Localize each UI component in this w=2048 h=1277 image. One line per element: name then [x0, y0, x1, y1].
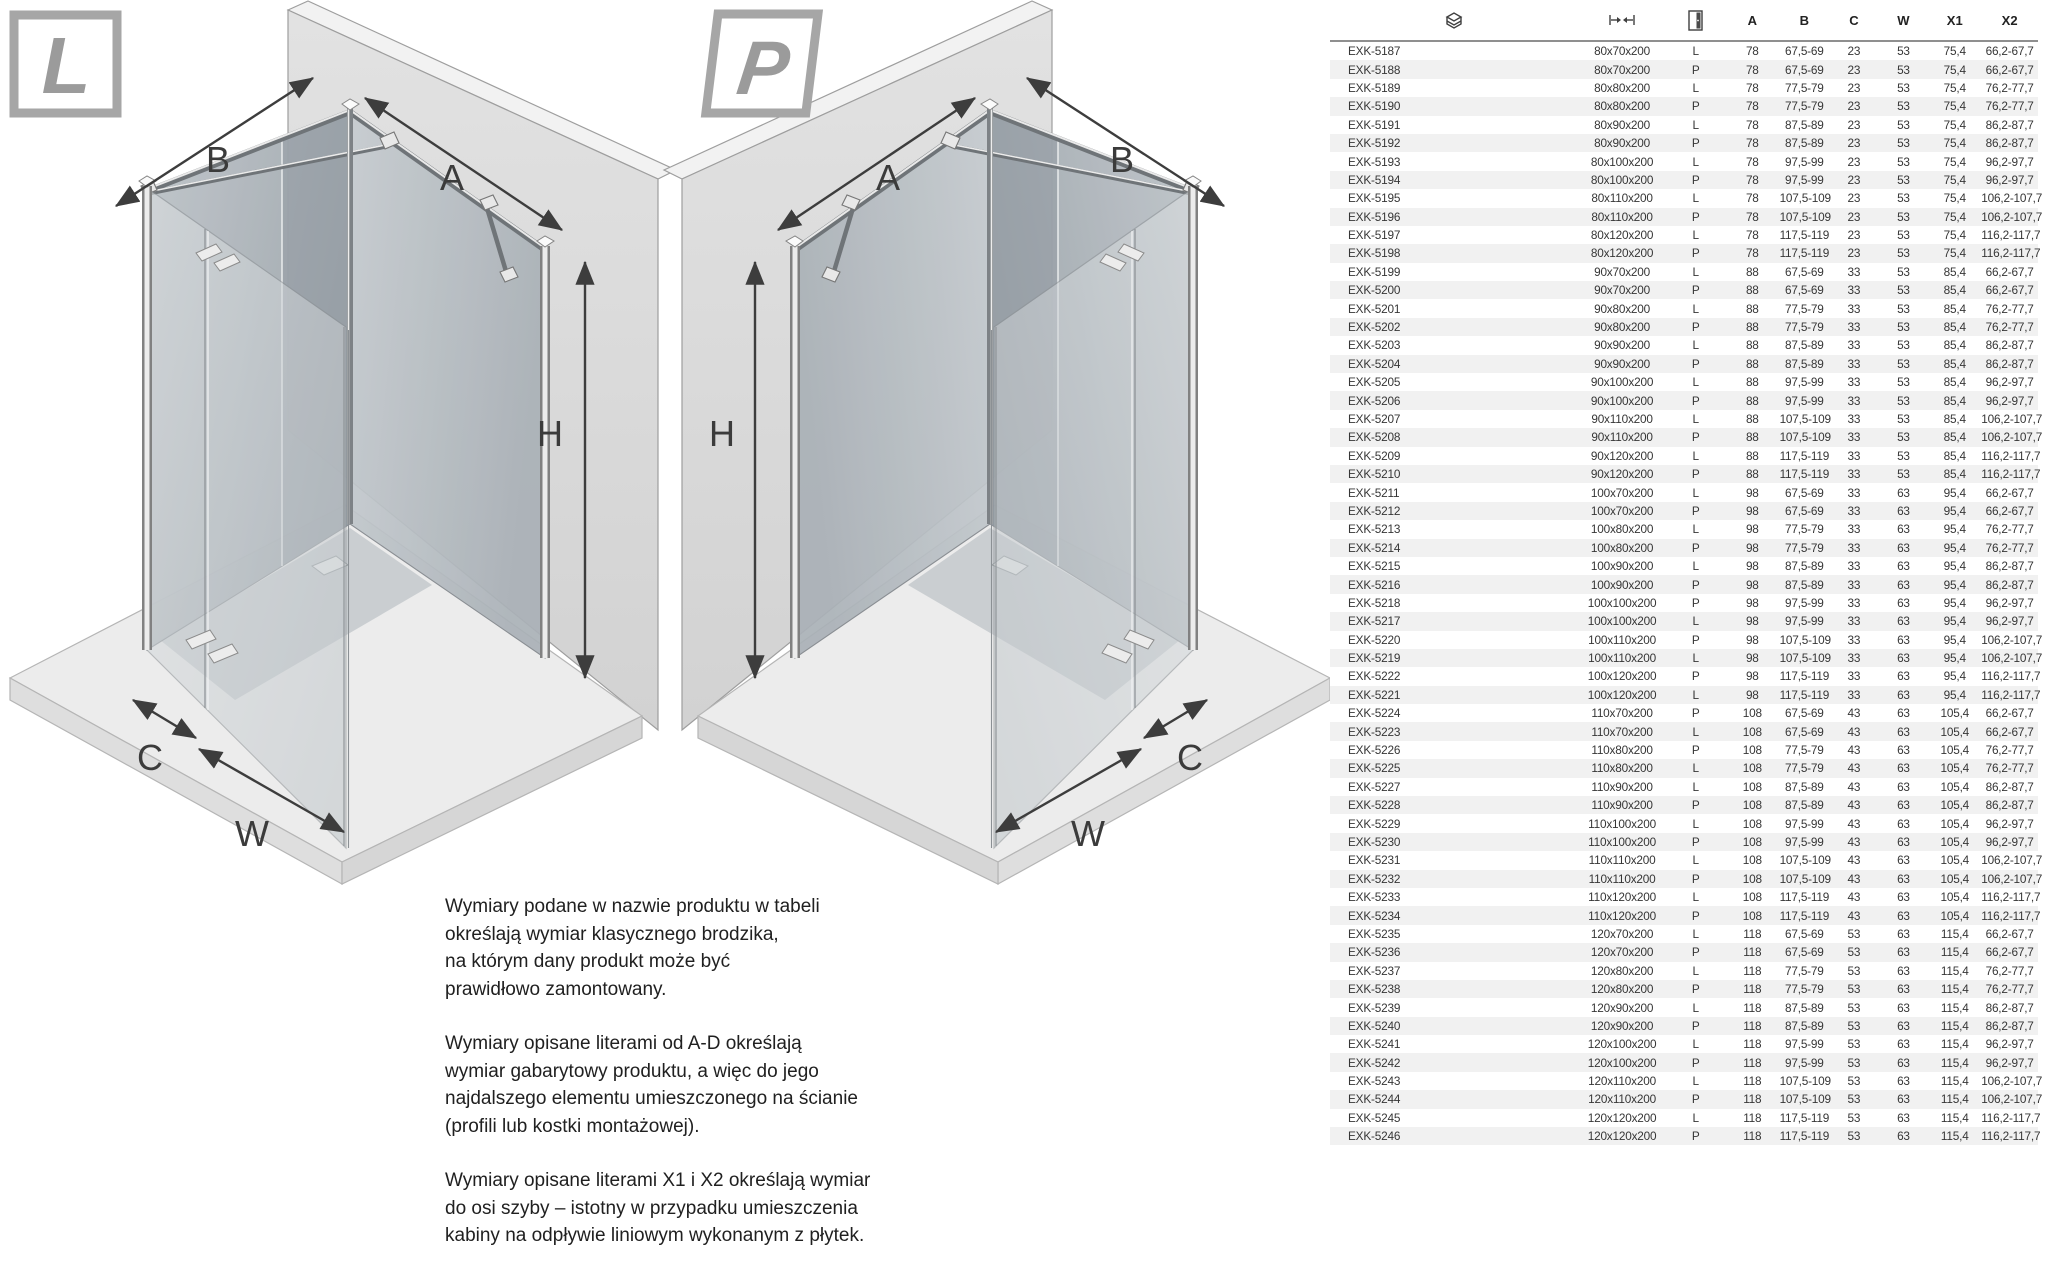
- table-cell: 86,2-87,7: [1981, 338, 2038, 352]
- table-cell: 95,4: [1928, 633, 1981, 647]
- table-cell: 118: [1725, 1074, 1780, 1088]
- table-cell: P: [1666, 1019, 1725, 1033]
- table-cell: 106,2-107,7: [1981, 1092, 2038, 1106]
- table-cell: 75,4: [1928, 228, 1981, 242]
- table-cell: 53: [1829, 1092, 1879, 1106]
- table-cell: 88: [1725, 449, 1780, 463]
- table-row: EXK-519990x70x200L8867,5-69335385,466,2-…: [1330, 263, 2038, 281]
- table-cell: 107,5-109: [1780, 1074, 1830, 1088]
- table-cell: 67,5-69: [1780, 945, 1830, 959]
- table-cell: 53: [1879, 118, 1929, 132]
- table-cell: 105,4: [1928, 817, 1981, 831]
- table-cell: EXK-5220: [1330, 633, 1578, 647]
- table-cell: EXK-5238: [1330, 982, 1578, 996]
- table-cell: 66,2-67,7: [1981, 44, 2038, 58]
- table-cell: 88: [1725, 467, 1780, 481]
- table-row: EXK-520290x80x200P8877,5-79335385,476,2-…: [1330, 318, 2038, 336]
- table-cell: 117,5-119: [1780, 890, 1830, 904]
- table-cell: EXK-5237: [1330, 964, 1578, 978]
- table-cell: 98: [1725, 596, 1780, 610]
- table-cell: 78: [1725, 210, 1780, 224]
- table-cell: EXK-5228: [1330, 798, 1578, 812]
- table-cell: EXK-5224: [1330, 706, 1578, 720]
- dim-label-b-left: B: [206, 139, 230, 180]
- table-cell: 116,2-117,7: [1981, 890, 2038, 904]
- table-cell: 110x120x200: [1578, 890, 1667, 904]
- table-cell: 23: [1829, 155, 1879, 169]
- table-cell: 88: [1725, 357, 1780, 371]
- table-cell: 116,2-117,7: [1981, 1129, 2038, 1143]
- table-cell: 77,5-79: [1780, 81, 1830, 95]
- table-cell: 98: [1725, 688, 1780, 702]
- table-cell: 120x90x200: [1578, 1019, 1667, 1033]
- table-cell: L: [1666, 1001, 1725, 1015]
- table-cell: 43: [1829, 835, 1879, 849]
- table-row: EXK-520190x80x200L8877,5-79335385,476,2-…: [1330, 299, 2038, 317]
- table-cell: 63: [1879, 909, 1929, 923]
- table-cell: 90x100x200: [1578, 394, 1667, 408]
- table-cell: 95,4: [1928, 596, 1981, 610]
- table-cell: P: [1666, 504, 1725, 518]
- table-cell: EXK-5189: [1330, 81, 1578, 95]
- table-cell: 108: [1725, 706, 1780, 720]
- table-cell: 120x120x200: [1578, 1129, 1667, 1143]
- table-row: EXK-5242120x100x200P11897,5-995363115,49…: [1330, 1053, 2038, 1071]
- table-cell: 33: [1829, 357, 1879, 371]
- table-cell: L: [1666, 614, 1725, 628]
- table-cell: 76,2-77,7: [1981, 982, 2038, 996]
- table-cell: 115,4: [1928, 1092, 1981, 1106]
- table-cell: 66,2-67,7: [1981, 486, 2038, 500]
- table-cell: 116,2-117,7: [1981, 909, 2038, 923]
- table-cell: 78: [1725, 99, 1780, 113]
- table-row: EXK-5238120x80x200P11877,5-795363115,476…: [1330, 980, 2038, 998]
- table-cell: 76,2-77,7: [1981, 964, 2038, 978]
- table-cell: EXK-5246: [1330, 1129, 1578, 1143]
- table-cell: EXK-5210: [1330, 467, 1578, 481]
- table-cell: 117,5-119: [1780, 449, 1830, 463]
- table-cell: L: [1666, 302, 1725, 316]
- table-cell: 23: [1829, 173, 1879, 187]
- table-cell: 107,5-109: [1780, 633, 1830, 647]
- table-cell: 53: [1879, 320, 1929, 334]
- table-cell: EXK-5235: [1330, 927, 1578, 941]
- table-cell: EXK-5200: [1330, 283, 1578, 297]
- variant-badge-right: P: [706, 14, 818, 113]
- table-cell: 33: [1829, 541, 1879, 555]
- table-cell: 63: [1879, 982, 1929, 996]
- table-cell: EXK-5212: [1330, 504, 1578, 518]
- table-cell: 53: [1829, 927, 1879, 941]
- table-cell: 120x90x200: [1578, 1001, 1667, 1015]
- table-cell: EXK-5214: [1330, 541, 1578, 555]
- table-cell: 105,4: [1928, 853, 1981, 867]
- table-cell: 80x70x200: [1578, 63, 1667, 77]
- table-cell: 100x70x200: [1578, 486, 1667, 500]
- table-cell: 98: [1725, 486, 1780, 500]
- table-cell: 116,2-117,7: [1981, 1111, 2038, 1125]
- table-cell: 88: [1725, 302, 1780, 316]
- table-cell: 76,2-77,7: [1981, 302, 2038, 316]
- table-cell: L: [1666, 761, 1725, 775]
- table-cell: 53: [1829, 1019, 1879, 1033]
- shower-cabin-diagrams: L B A H C W P A B H C W: [0, 0, 1360, 900]
- table-cell: EXK-5221: [1330, 688, 1578, 702]
- table-cell: L: [1666, 964, 1725, 978]
- table-cell: 77,5-79: [1780, 964, 1830, 978]
- table-cell: 53: [1879, 467, 1929, 481]
- table-cell: 53: [1879, 136, 1929, 150]
- table-cell: 98: [1725, 578, 1780, 592]
- table-cell: 75,4: [1928, 210, 1981, 224]
- table-cell: 80x70x200: [1578, 44, 1667, 58]
- table-cell: 120x100x200: [1578, 1056, 1667, 1070]
- table-cell: 90x90x200: [1578, 357, 1667, 371]
- table-cell: 86,2-87,7: [1981, 578, 2038, 592]
- table-cell: 75,4: [1928, 191, 1981, 205]
- table-cell: 100x110x200: [1578, 633, 1667, 647]
- table-cell: P: [1666, 669, 1725, 683]
- table-cell: 63: [1879, 1019, 1929, 1033]
- table-row: EXK-5240120x90x200P11887,5-895363115,486…: [1330, 1017, 2038, 1035]
- table-row: EXK-5216100x90x200P9887,5-89336395,486,2…: [1330, 575, 2038, 593]
- variant-badge-left: L: [14, 15, 117, 113]
- table-cell: 66,2-67,7: [1981, 265, 2038, 279]
- table-cell: 43: [1829, 743, 1879, 757]
- table-cell: 66,2-67,7: [1981, 283, 2038, 297]
- table-cell: 53: [1879, 357, 1929, 371]
- table-cell: EXK-5192: [1330, 136, 1578, 150]
- table-row: EXK-5234110x120x200P108117,5-1194363105,…: [1330, 906, 2038, 924]
- table-cell: 87,5-89: [1780, 559, 1830, 573]
- column-header-w: W: [1879, 13, 1929, 28]
- table-cell: 80x110x200: [1578, 191, 1667, 205]
- table-cell: 108: [1725, 798, 1780, 812]
- table-cell: 87,5-89: [1780, 578, 1830, 592]
- table-cell: L: [1666, 927, 1725, 941]
- table-cell: 95,4: [1928, 578, 1981, 592]
- table-cell: 97,5-99: [1780, 817, 1830, 831]
- table-cell: 63: [1879, 633, 1929, 647]
- table-cell: 33: [1829, 578, 1879, 592]
- table-row: EXK-5218100x100x200P9897,5-99336395,496,…: [1330, 594, 2038, 612]
- table-row: EXK-518880x70x200P7867,5-69235375,466,2-…: [1330, 60, 2038, 78]
- table-cell: 76,2-77,7: [1981, 99, 2038, 113]
- table-cell: 95,4: [1928, 669, 1981, 683]
- table-row: EXK-5243120x110x200L118107,5-1095363115,…: [1330, 1072, 2038, 1090]
- table-cell: 23: [1829, 228, 1879, 242]
- table-row: EXK-5236120x70x200P11867,5-695363115,466…: [1330, 943, 2038, 961]
- table-cell: 63: [1879, 559, 1929, 573]
- table-cell: 90x70x200: [1578, 283, 1667, 297]
- table-cell: EXK-5234: [1330, 909, 1578, 923]
- table-cell: 97,5-99: [1780, 596, 1830, 610]
- table-cell: 33: [1829, 375, 1879, 389]
- table-cell: 63: [1879, 964, 1929, 978]
- table-cell: 85,4: [1928, 394, 1981, 408]
- table-cell: 80x90x200: [1578, 118, 1667, 132]
- table-cell: 86,2-87,7: [1981, 136, 2038, 150]
- table-row: EXK-5220100x110x200P98107,5-109336395,41…: [1330, 631, 2038, 649]
- table-cell: 85,4: [1928, 338, 1981, 352]
- table-cell: 107,5-109: [1780, 1092, 1830, 1106]
- table-cell: 53: [1879, 265, 1929, 279]
- table-cell: 117,5-119: [1780, 228, 1830, 242]
- column-header-c: C: [1829, 13, 1879, 28]
- table-cell: 108: [1725, 909, 1780, 923]
- table-cell: L: [1666, 890, 1725, 904]
- table-cell: 76,2-77,7: [1981, 522, 2038, 536]
- diagram-left-cabin: L B A H C W: [10, 1, 676, 884]
- table-row: EXK-520790x110x200L88107,5-109335385,410…: [1330, 410, 2038, 428]
- table-cell: 87,5-89: [1780, 798, 1830, 812]
- table-cell: 63: [1879, 541, 1929, 555]
- table-cell: 63: [1879, 1074, 1929, 1088]
- table-cell: 85,4: [1928, 412, 1981, 426]
- table-row: EXK-5217100x100x200L9897,5-99336395,496,…: [1330, 612, 2038, 630]
- table-cell: 76,2-77,7: [1981, 743, 2038, 757]
- table-cell: 88: [1725, 412, 1780, 426]
- table-cell: L: [1666, 486, 1725, 500]
- table-cell: 33: [1829, 449, 1879, 463]
- table-cell: 67,5-69: [1780, 725, 1830, 739]
- table-cell: P: [1666, 320, 1725, 334]
- table-cell: 118: [1725, 945, 1780, 959]
- table-row: EXK-519680x110x200P78107,5-109235375,410…: [1330, 208, 2038, 226]
- table-cell: 53: [1879, 228, 1929, 242]
- table-cell: 63: [1879, 706, 1929, 720]
- table-row: EXK-520390x90x200L8887,5-89335385,486,2-…: [1330, 336, 2038, 354]
- table-cell: P: [1666, 633, 1725, 647]
- table-cell: 23: [1829, 136, 1879, 150]
- table-cell: 33: [1829, 486, 1879, 500]
- table-row: EXK-5213100x80x200L9877,5-79336395,476,2…: [1330, 520, 2038, 538]
- table-cell: 107,5-109: [1780, 412, 1830, 426]
- table-cell: 118: [1725, 1001, 1780, 1015]
- table-cell: 90x90x200: [1578, 338, 1667, 352]
- table-cell: 115,4: [1928, 1056, 1981, 1070]
- table-row: EXK-5215100x90x200L9887,5-89336395,486,2…: [1330, 557, 2038, 575]
- table-cell: 78: [1725, 155, 1780, 169]
- table-cell: 105,4: [1928, 761, 1981, 775]
- table-cell: 33: [1829, 669, 1879, 683]
- table-cell: 80x80x200: [1578, 81, 1667, 95]
- table-cell: 63: [1879, 761, 1929, 775]
- table-cell: EXK-5233: [1330, 890, 1578, 904]
- table-cell: 95,4: [1928, 522, 1981, 536]
- table-cell: 76,2-77,7: [1981, 761, 2038, 775]
- table-cell: P: [1666, 136, 1725, 150]
- table-cell: 118: [1725, 1019, 1780, 1033]
- table-cell: 105,4: [1928, 798, 1981, 812]
- table-cell: 106,2-107,7: [1981, 633, 2038, 647]
- table-cell: 106,2-107,7: [1981, 872, 2038, 886]
- table-cell: 63: [1879, 725, 1929, 739]
- table-cell: P: [1666, 394, 1725, 408]
- table-cell: 75,4: [1928, 99, 1981, 113]
- table-cell: 106,2-107,7: [1981, 191, 2038, 205]
- table-cell: 43: [1829, 853, 1879, 867]
- table-cell: L: [1666, 522, 1725, 536]
- table-cell: EXK-5242: [1330, 1056, 1578, 1070]
- table-cell: EXK-5191: [1330, 118, 1578, 132]
- table-cell: EXK-5206: [1330, 394, 1578, 408]
- dim-label-w-right: W: [1071, 813, 1105, 854]
- table-row: EXK-5227110x90x200L10887,5-894363105,486…: [1330, 778, 2038, 796]
- table-cell: 87,5-89: [1780, 338, 1830, 352]
- table-cell: 115,4: [1928, 1074, 1981, 1088]
- table-cell: 85,4: [1928, 302, 1981, 316]
- table-cell: 53: [1879, 246, 1929, 260]
- table-cell: 53: [1829, 964, 1879, 978]
- table-cell: 53: [1879, 210, 1929, 224]
- table-cell: 63: [1879, 614, 1929, 628]
- table-row: EXK-5228110x90x200P10887,5-894363105,486…: [1330, 796, 2038, 814]
- table-cell: 86,2-87,7: [1981, 798, 2038, 812]
- table-cell: L: [1666, 1074, 1725, 1088]
- table-row: EXK-5212100x70x200P9867,5-69336395,466,2…: [1330, 502, 2038, 520]
- table-cell: 78: [1725, 44, 1780, 58]
- table-cell: 78: [1725, 136, 1780, 150]
- table-cell: 33: [1829, 633, 1879, 647]
- table-cell: P: [1666, 541, 1725, 555]
- table-cell: L: [1666, 375, 1725, 389]
- table-cell: 90x100x200: [1578, 375, 1667, 389]
- table-cell: 67,5-69: [1780, 265, 1830, 279]
- table-cell: 110x90x200: [1578, 798, 1667, 812]
- table-cell: EXK-5196: [1330, 210, 1578, 224]
- table-cell: 97,5-99: [1780, 835, 1830, 849]
- table-cell: 118: [1725, 1092, 1780, 1106]
- table-cell: 115,4: [1928, 964, 1981, 978]
- table-cell: 100x100x200: [1578, 596, 1667, 610]
- table-row: EXK-5221100x120x200L98117,5-119336395,41…: [1330, 686, 2038, 704]
- table-cell: 67,5-69: [1780, 504, 1830, 518]
- table-cell: 85,4: [1928, 265, 1981, 279]
- table-cell: P: [1666, 578, 1725, 592]
- table-cell: 98: [1725, 669, 1780, 683]
- table-cell: 33: [1829, 394, 1879, 408]
- table-cell: 33: [1829, 688, 1879, 702]
- table-cell: 110x80x200: [1578, 743, 1667, 757]
- table-row: EXK-519080x80x200P7877,5-79235375,476,2-…: [1330, 97, 2038, 115]
- table-cell: 90x80x200: [1578, 320, 1667, 334]
- table-cell: L: [1666, 559, 1725, 573]
- table-cell: L: [1666, 81, 1725, 95]
- table-cell: 107,5-109: [1780, 210, 1830, 224]
- table-cell: 33: [1829, 283, 1879, 297]
- table-cell: EXK-5218: [1330, 596, 1578, 610]
- table-cell: 100x80x200: [1578, 541, 1667, 555]
- table-cell: L: [1666, 688, 1725, 702]
- table-cell: 53: [1879, 394, 1929, 408]
- table-cell: 67,5-69: [1780, 927, 1830, 941]
- table-cell: 120x120x200: [1578, 1111, 1667, 1125]
- table-cell: 63: [1879, 1092, 1929, 1106]
- dim-label-b-right: B: [1110, 139, 1134, 180]
- table-cell: 87,5-89: [1780, 357, 1830, 371]
- table-cell: 63: [1879, 688, 1929, 702]
- table-cell: L: [1666, 228, 1725, 242]
- table-cell: 33: [1829, 596, 1879, 610]
- table-cell: L: [1666, 853, 1725, 867]
- dim-label-h-right: H: [709, 413, 735, 454]
- table-cell: 118: [1725, 1056, 1780, 1070]
- table-cell: 85,4: [1928, 375, 1981, 389]
- table-row: EXK-5222100x120x200P98117,5-119336395,41…: [1330, 667, 2038, 685]
- table-cell: 107,5-109: [1780, 430, 1830, 444]
- table-cell: 107,5-109: [1780, 853, 1830, 867]
- table-cell: P: [1666, 909, 1725, 923]
- table-cell: 108: [1725, 780, 1780, 794]
- table-row: EXK-519180x90x200L7887,5-89235375,486,2-…: [1330, 116, 2038, 134]
- table-cell: 96,2-97,7: [1981, 835, 2038, 849]
- note-paragraph-3: Wymiary opisane literami X1 i X2 określa…: [445, 1167, 925, 1250]
- table-cell: L: [1666, 412, 1725, 426]
- table-cell: EXK-5223: [1330, 725, 1578, 739]
- table-cell: 63: [1879, 1129, 1929, 1143]
- table-cell: 106,2-107,7: [1981, 430, 2038, 444]
- table-cell: 67,5-69: [1780, 63, 1830, 77]
- table-cell: 86,2-87,7: [1981, 780, 2038, 794]
- column-header-x2: X2: [1981, 13, 2038, 28]
- table-cell: 116,2-117,7: [1981, 467, 2038, 481]
- table-cell: 66,2-67,7: [1981, 706, 2038, 720]
- table-cell: 66,2-67,7: [1981, 927, 2038, 941]
- table-cell: 86,2-87,7: [1981, 1019, 2038, 1033]
- table-cell: 115,4: [1928, 1037, 1981, 1051]
- table-cell: 106,2-107,7: [1981, 853, 2038, 867]
- dim-label-w-left: W: [235, 813, 269, 854]
- table-cell: 53: [1829, 1129, 1879, 1143]
- table-row: EXK-520890x110x200P88107,5-109335385,410…: [1330, 428, 2038, 446]
- table-cell: 110x90x200: [1578, 780, 1667, 794]
- table-cell: P: [1666, 1092, 1725, 1106]
- table-cell: 86,2-87,7: [1981, 1001, 2038, 1015]
- table-cell: 118: [1725, 982, 1780, 996]
- table-cell: 63: [1879, 817, 1929, 831]
- table-cell: 53: [1879, 99, 1929, 113]
- table-cell: 120x100x200: [1578, 1037, 1667, 1051]
- note-paragraph-2: Wymiary opisane literami od A-D określaj…: [445, 1030, 925, 1140]
- table-cell: 53: [1879, 173, 1929, 187]
- table-row: EXK-518780x70x200L7867,5-69235375,466,2-…: [1330, 42, 2038, 60]
- table-cell: EXK-5243: [1330, 1074, 1578, 1088]
- table-cell: 110x70x200: [1578, 725, 1667, 739]
- table-cell: 117,5-119: [1780, 246, 1830, 260]
- table-cell: 53: [1879, 191, 1929, 205]
- table-cell: 77,5-79: [1780, 982, 1830, 996]
- table-cell: 53: [1879, 449, 1929, 463]
- table-cell: 95,4: [1928, 688, 1981, 702]
- table-cell: 53: [1879, 412, 1929, 426]
- table-cell: 63: [1879, 1111, 1929, 1125]
- table-cell: 88: [1725, 430, 1780, 444]
- table-cell: L: [1666, 1037, 1725, 1051]
- table-cell: 96,2-97,7: [1981, 1056, 2038, 1070]
- table-row: EXK-5233110x120x200L108117,5-1194363105,…: [1330, 888, 2038, 906]
- table-cell: 77,5-79: [1780, 320, 1830, 334]
- table-row: EXK-519880x120x200P78117,5-119235375,411…: [1330, 244, 2038, 262]
- table-cell: 53: [1879, 338, 1929, 352]
- table-cell: P: [1666, 743, 1725, 757]
- table-cell: 85,4: [1928, 449, 1981, 463]
- table-cell: P: [1666, 1129, 1725, 1143]
- table-cell: 63: [1879, 780, 1929, 794]
- table-cell: 98: [1725, 559, 1780, 573]
- table-cell: 80x120x200: [1578, 228, 1667, 242]
- table-cell: L: [1666, 725, 1725, 739]
